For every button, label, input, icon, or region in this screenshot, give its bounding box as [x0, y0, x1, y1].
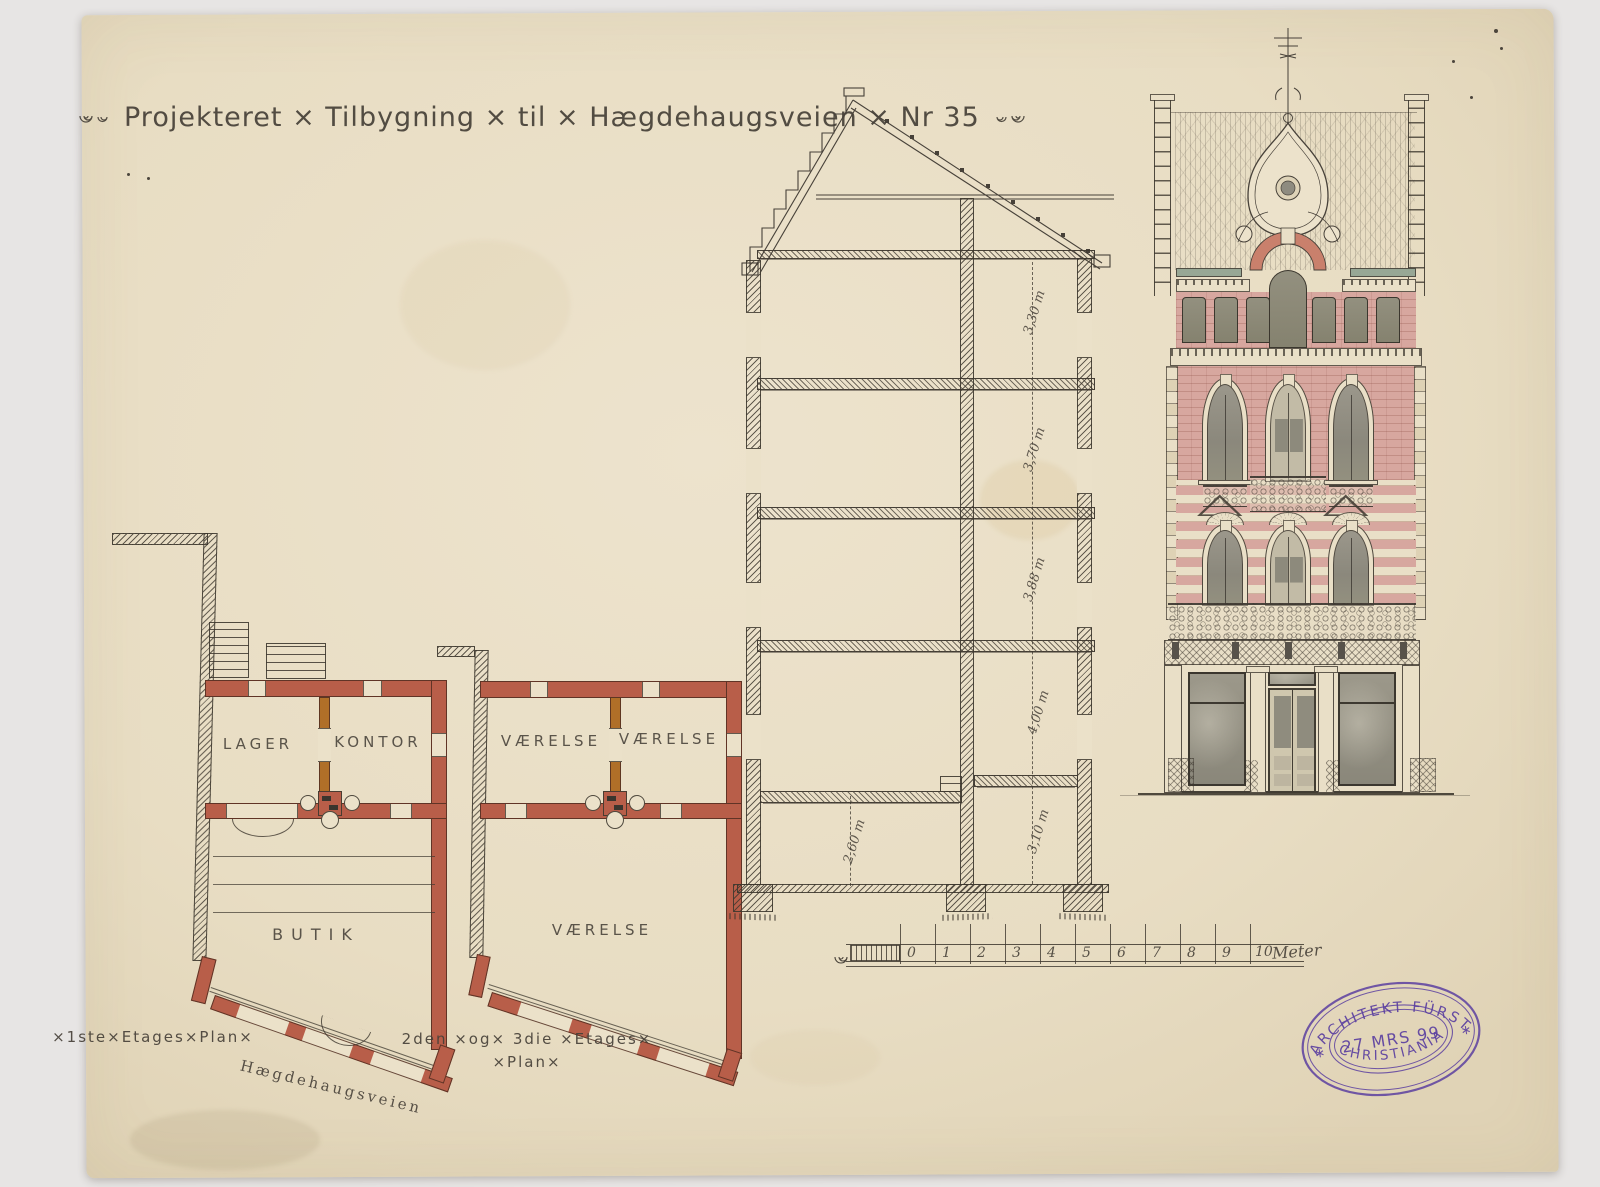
- facade-full-width-balcony: [1168, 603, 1416, 640]
- section-attic-floor-slab: [757, 250, 1095, 259]
- paper-stain: [130, 1110, 320, 1170]
- ink-speck: [1470, 96, 1473, 99]
- plan1-north-wall-window: [248, 681, 266, 696]
- spiral-ornament-icon: [78, 102, 114, 133]
- section-footing: [733, 884, 773, 912]
- plan2-stove-circle: [585, 795, 601, 811]
- plan1-mid-wall-opening: [226, 804, 298, 818]
- cornice-bracket: [1172, 642, 1179, 659]
- section-right-wall-window: [1077, 448, 1092, 494]
- plan1-mid-wall-door: [390, 804, 412, 818]
- facade-attic-panel: [1376, 297, 1400, 343]
- section-right-wall-window: [1077, 714, 1092, 760]
- scale-tick: [1145, 924, 1147, 964]
- plan1-stove-circle: [321, 811, 339, 829]
- section-floor-slab: [757, 640, 1095, 652]
- facade-ground-line-faint: [1120, 795, 1470, 796]
- facade-shopfront-cornice: [1164, 640, 1420, 665]
- plan1-north-wall-window: [363, 681, 382, 696]
- plan2-north-wall-window: [530, 682, 548, 697]
- door-center-line: [1292, 690, 1293, 791]
- window-glass: [1207, 384, 1243, 481]
- section-footing: [946, 884, 986, 912]
- scale-bar-lower-line: [846, 966, 1304, 968]
- facade-attic-panel: [1246, 297, 1270, 343]
- plan1-caption: ×1ste×Etages×Plan×: [52, 1028, 254, 1046]
- scale-tick: [1040, 924, 1042, 964]
- facade-center-balcony: [1250, 476, 1326, 512]
- scanned-architectural-drawing: Projekteret × Tilbygning × til × Hægdeha…: [0, 0, 1600, 1187]
- plan1-north-wall: [205, 680, 447, 697]
- section-left-wall-window: [746, 448, 761, 494]
- facade-left-chimney: [1154, 100, 1171, 296]
- section-middle-wall: [960, 198, 974, 885]
- window-glass: [1333, 384, 1369, 481]
- paper-stain: [750, 1030, 880, 1085]
- section-small-steps: [940, 776, 962, 792]
- shopfront-base-panel: [1244, 760, 1258, 792]
- section-floor-slab: [757, 507, 1095, 519]
- shopfront-base-panel: [1410, 758, 1436, 792]
- ink-speck: [1452, 60, 1455, 63]
- cornice-bracket: [1232, 642, 1239, 659]
- scale-number: 3: [1012, 945, 1021, 961]
- section-left-wall-window: [746, 312, 761, 358]
- section-right-bay-floor-slab: [974, 775, 1078, 787]
- plan1-entry-steps: [266, 643, 326, 679]
- plan1-room-label-kontor: KONTOR: [334, 733, 421, 751]
- scale-number: 4: [1047, 945, 1056, 961]
- plan1-room-label-butik: BUTIK: [272, 925, 360, 944]
- scale-number: 0: [907, 945, 916, 961]
- plan2-mid-wall-door: [505, 804, 527, 818]
- plan2-room-label-vaerelse-3: VÆRELSE: [552, 921, 652, 939]
- section-footing: [1063, 884, 1103, 912]
- section-ground-line: [737, 884, 1109, 893]
- plan1-stove-circle: [300, 795, 316, 811]
- facade-main-cornice: [1170, 348, 1422, 366]
- scale-tick: [1005, 924, 1007, 964]
- facade-attic-panel: [1214, 297, 1238, 343]
- section-left-wall-window: [746, 714, 761, 760]
- scale-tick: [970, 924, 972, 964]
- plan1-staircase: [209, 622, 249, 678]
- section-right-wall-window: [1077, 582, 1092, 628]
- scale-number: 7: [1152, 945, 1161, 961]
- section-left-wall-window: [746, 582, 761, 628]
- stamp-star-left: ∗: [1313, 1046, 1326, 1063]
- facade-attic-panel: [1312, 297, 1336, 343]
- scale-bar-subdivision: [850, 945, 900, 961]
- scale-number: 6: [1117, 945, 1126, 961]
- section-roof-truss: [730, 85, 1130, 290]
- paper-stain: [400, 240, 570, 370]
- cornice-bracket: [1400, 642, 1407, 659]
- plan1-east-wall-window: [432, 733, 446, 757]
- shop-window: [1338, 672, 1396, 786]
- facade-window: [1202, 524, 1248, 606]
- shopfront-base-panel: [1326, 760, 1340, 792]
- facade-window: [1202, 378, 1248, 482]
- scale-end-number: 10: [1255, 944, 1273, 960]
- plan2-room-label-vaerelse-1: VÆRELSE: [501, 732, 601, 750]
- shop-window-transom: [1190, 702, 1244, 704]
- shopfront-base-panel: [1168, 758, 1194, 792]
- plan2-north-wall: [480, 681, 732, 698]
- stamp-star-right: ∗: [1460, 1022, 1473, 1039]
- scale-tick: [935, 924, 937, 964]
- facade-right-chimney: [1408, 100, 1425, 296]
- ink-speck: [127, 173, 130, 176]
- pilaster-capital: [1246, 666, 1270, 673]
- plan1-partition-door: [318, 728, 331, 762]
- scale-number: 9: [1222, 945, 1231, 961]
- plan2-mid-wall-door: [660, 804, 682, 818]
- scale-tick: [900, 924, 902, 964]
- shop-door-transom: [1268, 672, 1316, 686]
- cornice-bracket: [1338, 642, 1345, 659]
- plan2-caption-line2: ×Plan×: [492, 1053, 561, 1071]
- plan2-stove-circle: [606, 811, 624, 829]
- scale-number: 5: [1082, 945, 1091, 961]
- pilaster-capital: [1314, 666, 1338, 673]
- scale-unit-label: Meter: [1271, 940, 1322, 962]
- facade-balcony-door: [1265, 524, 1311, 606]
- facade-window: [1328, 524, 1374, 606]
- plan2-room-label-vaerelse-2: VÆRELSE: [619, 730, 719, 748]
- plan2-caption-line1: 2den ×og× 3die ×Etages×: [402, 1030, 653, 1048]
- facade-gable-and-spire: [1218, 28, 1358, 293]
- door-glass: [1270, 384, 1306, 481]
- facade-attic-panel: [1344, 297, 1368, 343]
- ink-speck: [1494, 29, 1498, 33]
- shop-window: [1188, 672, 1246, 786]
- plan2-east-wall-window: [727, 733, 741, 757]
- scale-tick: [1180, 924, 1182, 964]
- plan1-room-label-lager: LAGER: [223, 735, 293, 753]
- facade-attic-panel: [1182, 297, 1206, 343]
- ink-speck: [1500, 47, 1503, 50]
- shop-entrance-door: [1268, 688, 1316, 793]
- door-glass: [1270, 530, 1306, 605]
- scale-tick: [1250, 924, 1252, 964]
- scale-number: 1: [942, 945, 951, 961]
- scale-number: 8: [1187, 945, 1196, 961]
- plan1-existing-wall-horizontal: [112, 533, 208, 545]
- window-glass: [1207, 530, 1243, 605]
- ink-speck: [147, 177, 150, 180]
- window-glass: [1333, 530, 1369, 605]
- plan2-north-wall-window: [642, 682, 660, 697]
- facade-green-band-right: [1350, 268, 1416, 277]
- scale-tick: [1110, 924, 1112, 964]
- scale-tick: [1075, 924, 1077, 964]
- scale-number: 2: [977, 945, 986, 961]
- plan2-stove-circle: [629, 795, 645, 811]
- plan1-stove-circle: [344, 795, 360, 811]
- facade-balcony-door: [1265, 378, 1311, 482]
- cornice-bracket: [1285, 642, 1292, 659]
- section-floor-slab: [757, 378, 1095, 390]
- section-left-bay-floor-slab: [760, 791, 962, 803]
- facade-window: [1328, 378, 1374, 482]
- plan1-shop-floor-lines: [213, 853, 435, 913]
- plan2-existing-wall-horizontal: [437, 646, 475, 657]
- shop-window-transom: [1340, 702, 1394, 704]
- scale-tick: [1215, 924, 1217, 964]
- section-right-wall-window: [1077, 312, 1092, 358]
